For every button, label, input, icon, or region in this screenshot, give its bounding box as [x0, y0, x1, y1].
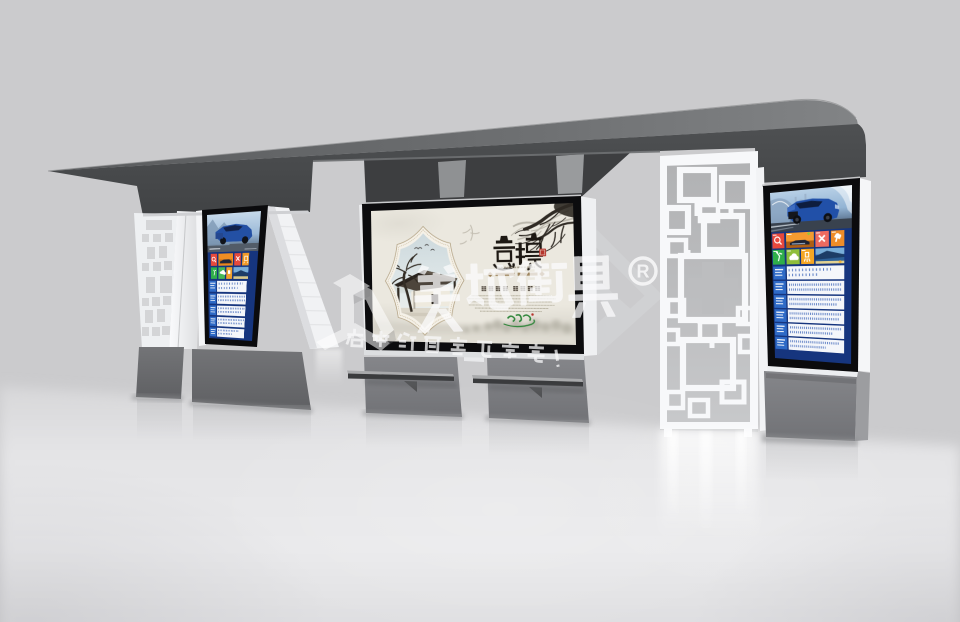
svg-text:R: R	[637, 262, 650, 282]
